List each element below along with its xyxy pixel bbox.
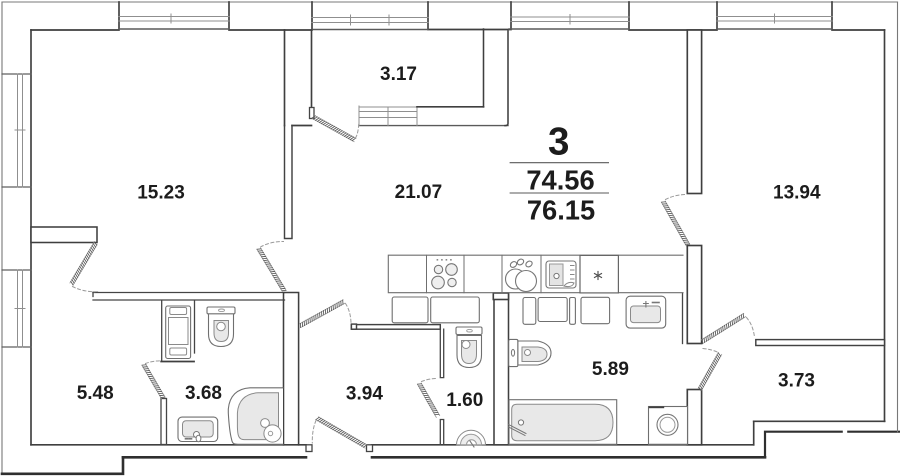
svg-text:76.15: 76.15 [527,194,595,225]
svg-text:13.94: 13.94 [773,182,821,203]
svg-text:3.94: 3.94 [346,383,383,404]
svg-text:15.23: 15.23 [137,182,185,203]
svg-text:3.68: 3.68 [185,383,222,404]
svg-text:3.73: 3.73 [778,371,815,392]
svg-text:1.60: 1.60 [446,390,483,411]
svg-text:74.56: 74.56 [526,164,594,195]
svg-text:5.48: 5.48 [77,383,114,404]
svg-text:3.17: 3.17 [380,64,417,85]
svg-text:3: 3 [548,121,569,164]
svg-text:5.89: 5.89 [592,359,629,380]
svg-text:21.07: 21.07 [395,182,443,203]
